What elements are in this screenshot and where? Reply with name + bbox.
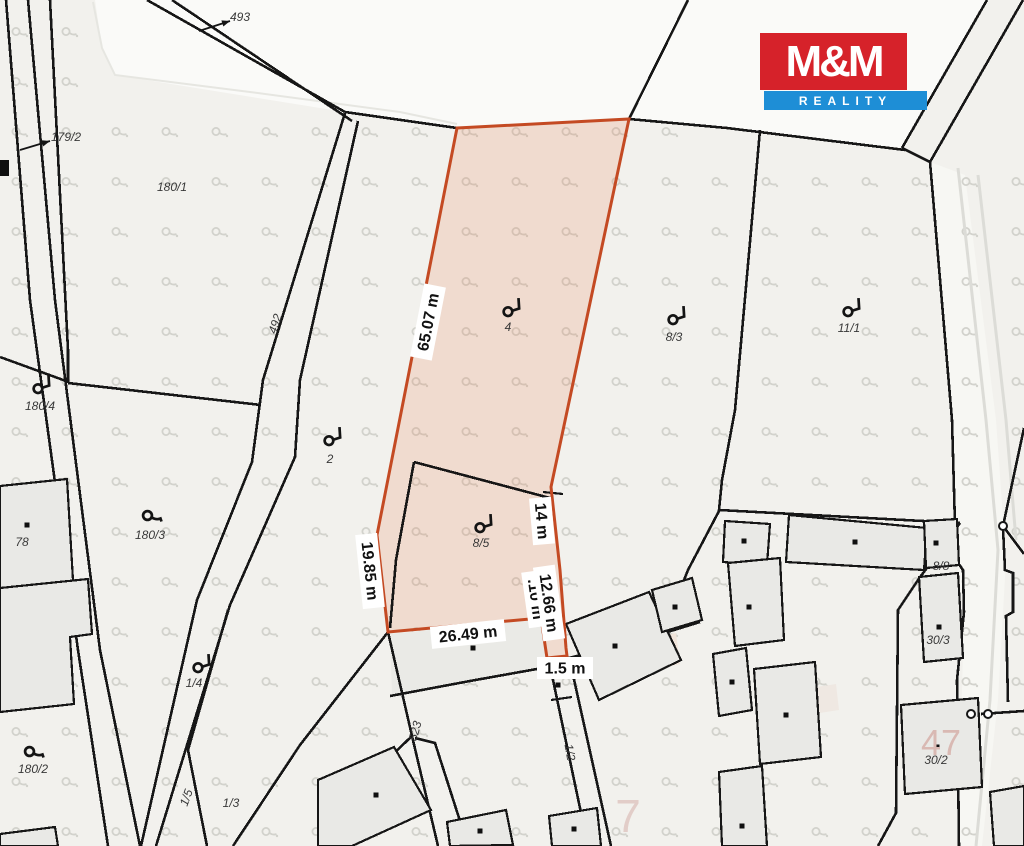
grass-symbol-icon xyxy=(312,228,328,237)
parcel-number-label: 8/3 xyxy=(666,330,683,344)
svg-text:1.5 m: 1.5 m xyxy=(545,661,586,678)
grass-symbol-icon xyxy=(812,828,828,837)
parcel-boundary-line xyxy=(141,113,345,846)
grass-symbol-icon xyxy=(862,228,878,237)
highlighted-parcel-fill xyxy=(377,119,629,658)
grass-symbol-icon xyxy=(262,378,278,387)
grass-symbol-icon xyxy=(862,328,878,337)
grass-symbol-icon xyxy=(762,328,778,337)
grass-symbol-icon xyxy=(312,328,328,337)
grass-symbol-icon xyxy=(212,328,228,337)
grass-symbol-icon xyxy=(512,678,528,687)
grass-symbol-icon xyxy=(262,578,278,587)
measurement-label: 14 m xyxy=(529,497,555,546)
grass-symbol-icon xyxy=(612,728,628,737)
grass-symbol-icon xyxy=(112,328,128,337)
grass-symbol-icon xyxy=(112,828,128,837)
grass-symbol-icon xyxy=(312,478,328,487)
grass-symbol-icon xyxy=(312,728,328,737)
parcel-number-label: 493 xyxy=(230,10,250,24)
grass-symbol-icon xyxy=(862,628,878,637)
grass-symbol-icon xyxy=(662,228,678,237)
grass-symbol-icon xyxy=(262,528,278,537)
grass-symbol-icon xyxy=(812,378,828,387)
grass-symbol-icon xyxy=(512,728,528,737)
grass-symbol-icon xyxy=(212,378,228,387)
building-point-marker xyxy=(934,541,939,546)
grass-symbol-icon xyxy=(162,378,178,387)
grass-symbol-icon xyxy=(612,528,628,537)
grass-symbol-icon xyxy=(612,378,628,387)
grass-symbol-icon xyxy=(812,278,828,287)
building-point-marker xyxy=(740,824,745,829)
building-point-marker xyxy=(730,680,735,685)
grass-symbol-icon xyxy=(112,278,128,287)
grass-symbol-icon xyxy=(362,278,378,287)
land-use-symbol-icon xyxy=(25,747,43,757)
grass-symbol-icon xyxy=(1012,678,1024,687)
parcel-number-label: 4 xyxy=(505,320,512,334)
grass-symbol-icon xyxy=(362,128,378,137)
grass-symbol-icon xyxy=(12,378,28,387)
parcel-number-label: 180/1 xyxy=(157,180,187,194)
grass-symbol-icon xyxy=(162,478,178,487)
parcel-number-label: 1/4 xyxy=(186,676,203,690)
grass-symbol-icon xyxy=(312,378,328,387)
cadastral-map-canvas: 493179/2180/1492180/4248/311/1180/3788/5… xyxy=(0,0,1024,846)
label-arrowhead-icon xyxy=(41,140,50,146)
grass-symbol-icon xyxy=(262,178,278,187)
grass-symbol-icon xyxy=(862,578,878,587)
grass-symbol-icon xyxy=(662,478,678,487)
grass-symbol-icon xyxy=(712,728,728,737)
mm-reality-banner-text: REALITY xyxy=(799,94,892,108)
grass-symbol-icon xyxy=(762,778,778,787)
building xyxy=(0,827,58,846)
parcel-number-label: 2 xyxy=(326,452,334,466)
grass-symbol-icon xyxy=(112,378,128,387)
grass-symbol-icon xyxy=(12,328,28,337)
grass-symbol-icon xyxy=(1012,278,1024,287)
grass-symbol-icon xyxy=(662,378,678,387)
parcel-boundary-line xyxy=(68,383,261,405)
land-use-symbol-icon xyxy=(842,298,861,316)
grass-symbol-icon xyxy=(362,228,378,237)
land-use-symbol-icon xyxy=(192,654,211,672)
parcel-number-label: 1/3 xyxy=(223,796,240,810)
grass-symbol-icon xyxy=(112,478,128,487)
grass-symbol-icon xyxy=(212,128,228,137)
building-point-marker xyxy=(784,713,789,718)
grass-symbol-icon xyxy=(362,428,378,437)
grass-symbol-icon xyxy=(262,828,278,837)
grass-symbol-icon xyxy=(912,428,928,437)
grass-symbol-icon xyxy=(562,578,578,587)
grass-symbol-icon xyxy=(62,428,78,437)
grass-symbol-icon xyxy=(212,828,228,837)
parcel-number-label: 8/5 xyxy=(473,536,490,550)
parcel-number-large-label: 47 xyxy=(921,722,961,763)
grass-symbol-icon xyxy=(112,678,128,687)
parcel-boundary-line xyxy=(902,148,930,162)
grass-symbol-icon xyxy=(262,278,278,287)
land-use-symbol-icon xyxy=(323,427,342,445)
grass-symbol-icon xyxy=(712,578,728,587)
grass-symbol-icon xyxy=(762,228,778,237)
grass-symbol-icon xyxy=(62,28,78,37)
building-point-marker xyxy=(747,605,752,610)
grass-symbol-icon xyxy=(162,578,178,587)
boundary-vertex-marker xyxy=(967,710,975,718)
grass-symbol-icon xyxy=(62,828,78,837)
grass-symbol-icon xyxy=(1012,378,1024,387)
grass-symbol-icon xyxy=(212,178,228,187)
grass-symbol-icon xyxy=(812,428,828,437)
grass-symbol-icon xyxy=(562,528,578,537)
building-point-marker xyxy=(613,644,618,649)
grass-symbol-icon xyxy=(112,628,128,637)
building-point-marker xyxy=(742,539,747,544)
grass-symbol-icon xyxy=(912,278,928,287)
grass-symbol-icon xyxy=(812,778,828,787)
grass-symbol-icon xyxy=(262,428,278,437)
grass-symbol-icon xyxy=(362,628,378,637)
grass-symbol-icon xyxy=(612,778,628,787)
grass-symbol-icon xyxy=(862,278,878,287)
grass-symbol-icon xyxy=(62,178,78,187)
parcel-boundary-line xyxy=(551,697,572,700)
grass-symbol-icon xyxy=(862,828,878,837)
grass-symbol-icon xyxy=(812,578,828,587)
grass-symbol-icon xyxy=(112,178,128,187)
mm-reality-logo-mark: M&M xyxy=(760,33,907,90)
grass-symbol-icon xyxy=(662,128,678,137)
map-edge-symbol xyxy=(0,160,9,176)
grass-symbol-icon xyxy=(112,128,128,137)
grass-symbol-icon xyxy=(162,328,178,337)
grass-symbol-icon xyxy=(362,728,378,737)
grass-symbol-icon xyxy=(712,178,728,187)
grass-symbol-icon xyxy=(262,628,278,637)
building-point-marker xyxy=(374,793,379,798)
mm-reality-logo-text: M&M xyxy=(785,37,881,87)
grass-symbol-icon xyxy=(12,728,28,737)
grass-symbol-icon xyxy=(862,728,878,737)
grass-symbol-icon xyxy=(662,678,678,687)
grass-symbol-icon xyxy=(712,328,728,337)
grass-symbol-icon xyxy=(412,228,428,237)
grass-symbol-icon xyxy=(212,428,228,437)
parcel-boundary-line xyxy=(722,130,760,480)
grass-symbol-icon xyxy=(612,428,628,437)
grass-symbol-icon xyxy=(262,478,278,487)
grass-symbol-icon xyxy=(862,678,878,687)
grass-symbol-icon xyxy=(462,728,478,737)
building xyxy=(919,573,963,662)
building xyxy=(719,766,767,846)
grass-symbol-icon xyxy=(262,728,278,737)
parcel-number-label: 1/2 xyxy=(562,743,579,762)
building-point-marker xyxy=(25,523,30,528)
mm-reality-logo-banner: REALITY xyxy=(764,91,927,110)
grass-symbol-icon xyxy=(62,228,78,237)
grass-symbol-icon xyxy=(762,428,778,437)
parcel-number-label: 180/3 xyxy=(135,528,165,542)
grass-symbol-icon xyxy=(412,828,428,837)
grass-symbol-icon xyxy=(662,728,678,737)
building-point-marker xyxy=(673,605,678,610)
grass-symbol-icon xyxy=(262,678,278,687)
grass-symbol-icon xyxy=(12,28,28,37)
grass-symbol-icon xyxy=(112,428,128,437)
grass-symbol-icon xyxy=(1012,728,1024,737)
grass-symbol-icon xyxy=(712,378,728,387)
grass-symbol-icon xyxy=(62,78,78,87)
grass-symbol-icon xyxy=(562,478,578,487)
grass-symbol-icon xyxy=(212,278,228,287)
grass-symbol-icon xyxy=(562,428,578,437)
cadastral-map: 493179/2180/1492180/4248/311/1180/3788/5… xyxy=(0,0,1024,846)
grass-symbol-icon xyxy=(762,378,778,387)
grass-symbol-icon xyxy=(112,578,128,587)
grass-symbol-icon xyxy=(862,478,878,487)
grass-symbol-icon xyxy=(362,328,378,337)
grass-symbol-icon xyxy=(162,228,178,237)
grass-symbol-icon xyxy=(212,578,228,587)
grass-symbol-icon xyxy=(812,178,828,187)
grass-symbol-icon xyxy=(312,128,328,137)
grass-symbol-icon xyxy=(662,828,678,837)
parcel-number-label: 179/2 xyxy=(51,130,81,144)
grass-symbol-icon xyxy=(1012,328,1024,337)
grass-symbol-icon xyxy=(412,128,428,137)
grass-symbol-icon xyxy=(12,778,28,787)
grass-symbol-icon xyxy=(262,128,278,137)
grass-symbol-icon xyxy=(912,378,928,387)
grass-symbol-icon xyxy=(412,178,428,187)
grass-symbol-icon xyxy=(162,278,178,287)
grass-symbol-icon xyxy=(212,228,228,237)
parcel-boundary-line xyxy=(1003,528,1013,702)
grass-symbol-icon xyxy=(912,228,928,237)
grass-symbol-icon xyxy=(662,778,678,787)
parcel-boundary-line xyxy=(156,121,358,846)
grass-symbol-icon xyxy=(212,678,228,687)
grass-symbol-icon xyxy=(862,378,878,387)
grass-symbol-icon xyxy=(12,128,28,137)
grass-symbol-icon xyxy=(762,478,778,487)
grass-symbol-icon xyxy=(612,478,628,487)
parcel-boundary-line xyxy=(0,357,66,381)
grass-symbol-icon xyxy=(312,628,328,637)
grass-symbol-icon xyxy=(262,228,278,237)
grass-symbol-icon xyxy=(612,578,628,587)
survey-point-marker xyxy=(471,646,476,651)
grass-symbol-icon xyxy=(112,728,128,737)
parcel-number-label: 8/8 xyxy=(933,559,950,573)
grass-symbol-icon xyxy=(62,728,78,737)
building xyxy=(990,786,1024,846)
grass-symbol-icon xyxy=(862,778,878,787)
parcel-number-label: 30/3 xyxy=(926,633,950,647)
grass-symbol-icon xyxy=(1012,628,1024,637)
grass-symbol-icon xyxy=(612,278,628,287)
grass-symbol-icon xyxy=(662,278,678,287)
grass-symbol-icon xyxy=(762,178,778,187)
grass-symbol-icon xyxy=(812,478,828,487)
grass-symbol-icon xyxy=(912,678,928,687)
grass-symbol-icon xyxy=(1012,228,1024,237)
grass-symbol-icon xyxy=(712,228,728,237)
grass-symbol-icon xyxy=(512,828,528,837)
survey-point-marker xyxy=(556,683,561,688)
grass-symbol-icon xyxy=(662,428,678,437)
grass-symbol-icon xyxy=(62,778,78,787)
parcel-number-label: 11/1 xyxy=(838,321,860,335)
grass-symbol-icon xyxy=(662,178,678,187)
grass-symbol-icon xyxy=(112,228,128,237)
grass-symbol-icon xyxy=(862,178,878,187)
building-point-marker xyxy=(937,625,942,630)
grass-symbol-icon xyxy=(912,828,928,837)
mm-reality-logo: M&M REALITY xyxy=(757,30,937,112)
grass-symbol-icon xyxy=(612,328,628,337)
grass-symbol-icon xyxy=(112,528,128,537)
grass-symbol-icon xyxy=(312,428,328,437)
grass-symbol-icon xyxy=(912,478,928,487)
grass-symbol-icon xyxy=(162,828,178,837)
grass-symbol-icon xyxy=(762,278,778,287)
grass-symbol-icon xyxy=(862,428,878,437)
grass-symbol-icon xyxy=(712,628,728,637)
grass-symbol-icon xyxy=(362,178,378,187)
building-point-marker xyxy=(853,540,858,545)
grass-symbol-icon xyxy=(1012,178,1024,187)
grass-symbol-icon xyxy=(312,678,328,687)
parcel-number-label: 78 xyxy=(15,535,29,549)
grass-symbol-icon xyxy=(712,428,728,437)
grass-symbol-icon xyxy=(212,778,228,787)
parcel-number-label: 180/2 xyxy=(18,762,48,776)
grass-symbol-icon xyxy=(212,478,228,487)
grass-symbol-icon xyxy=(162,428,178,437)
grass-symbol-icon xyxy=(662,528,678,537)
building xyxy=(728,558,784,646)
grass-symbol-icon xyxy=(162,128,178,137)
grass-symbol-icon xyxy=(362,678,378,687)
boundary-vertex-marker xyxy=(984,710,992,718)
grass-symbol-icon xyxy=(912,328,928,337)
grass-symbol-icon xyxy=(162,678,178,687)
grass-symbol-icon xyxy=(812,628,828,637)
grass-symbol-icon xyxy=(812,328,828,337)
grass-symbol-icon xyxy=(462,778,478,787)
parcel-boundary-line xyxy=(719,480,960,523)
grass-symbol-icon xyxy=(362,478,378,487)
parcel-boundary-line xyxy=(188,610,228,846)
grass-symbol-icon xyxy=(12,78,28,87)
land-use-symbol-icon xyxy=(143,511,161,521)
boundary-vertex-marker xyxy=(999,522,1007,530)
grass-symbol-icon xyxy=(12,278,28,287)
grass-symbol-icon xyxy=(512,778,528,787)
parcel-boundary-line xyxy=(28,0,140,846)
grass-symbol-icon xyxy=(712,278,728,287)
grass-symbol-icon xyxy=(812,228,828,237)
grass-symbol-icon xyxy=(362,378,378,387)
grass-symbol-icon xyxy=(612,228,628,237)
parcel-number-large-label: 7 xyxy=(615,790,641,842)
building-point-marker xyxy=(478,829,483,834)
parcel-number-label: 1/5 xyxy=(177,787,196,808)
grass-symbol-icon xyxy=(312,528,328,537)
parcel-number-label: 180/4 xyxy=(25,399,55,413)
land-use-symbol-icon xyxy=(667,306,686,324)
grass-symbol-icon xyxy=(912,178,928,187)
grass-symbol-icon xyxy=(12,428,28,437)
grass-symbol-icon xyxy=(162,628,178,637)
grass-symbol-icon xyxy=(62,328,78,337)
grass-symbol-icon xyxy=(212,728,228,737)
measurement-label: 1.5 m xyxy=(537,657,593,679)
grass-symbol-icon xyxy=(312,578,328,587)
building-point-marker xyxy=(572,827,577,832)
svg-text:14 m: 14 m xyxy=(531,502,551,540)
